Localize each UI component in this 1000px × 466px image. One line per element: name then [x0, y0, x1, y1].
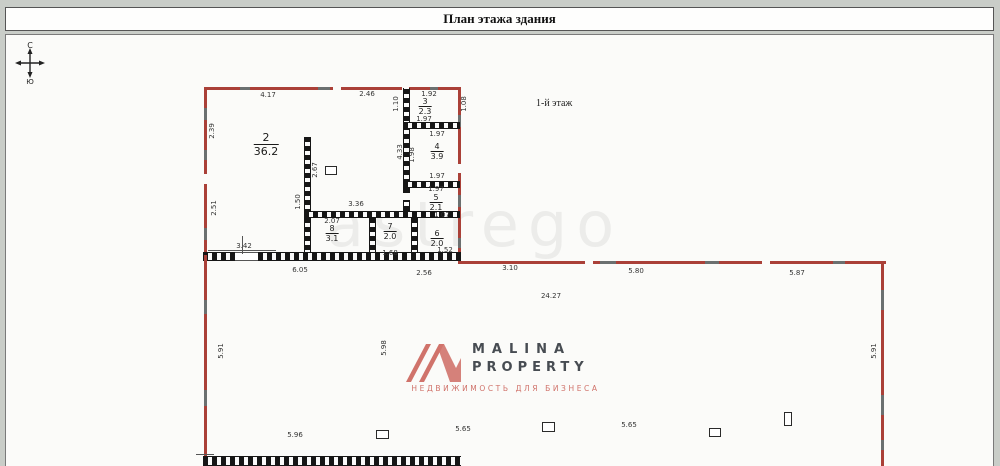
dimension-label: 2.51: [210, 200, 218, 216]
screen: План этажа здания С Ю astrego 1-й этаж: [0, 0, 1000, 466]
outer-wall: [461, 261, 886, 264]
dimension-label: 3.42: [236, 242, 252, 250]
wall-segment: [318, 87, 330, 90]
dimension-label: 2.07: [324, 217, 340, 225]
dimension-label: 5.91: [870, 343, 878, 359]
dimension-label: 5.96: [287, 431, 303, 439]
window: [235, 252, 259, 261]
wall-segment: [705, 261, 719, 264]
dimension-label: 1.97: [416, 115, 432, 123]
dimension-label: 1.50: [294, 194, 302, 210]
door-gap: [333, 87, 341, 90]
wall-segment: [458, 238, 461, 248]
dimension-label: 1.97: [429, 172, 445, 180]
dimension-label: 6.05: [292, 266, 308, 274]
dimension-label: 1.07: [434, 211, 450, 219]
wall-segment: [600, 261, 616, 264]
logo: MALINA PROPERTY НЕДВИЖИМОСТЬ ДЛЯ БИЗНЕСА: [398, 334, 613, 398]
interior-wall: [403, 122, 460, 129]
dimension-label: 1.68: [382, 249, 398, 257]
dimension-label: 1.97: [428, 185, 444, 193]
interior-wall: [258, 252, 461, 261]
dimension-label: 1.98: [408, 147, 416, 163]
logo-tagline: НЕДВИЖИМОСТЬ ДЛЯ БИЗНЕСА: [398, 384, 613, 393]
room-label: 72.0: [384, 222, 397, 242]
door-gap: [585, 261, 593, 264]
room-label: 32.3: [419, 97, 432, 117]
dimension-label: 1.97: [429, 130, 445, 138]
column: [376, 430, 389, 439]
dimension-label: 5.80: [628, 267, 644, 275]
wall-segment: [881, 440, 884, 450]
wall-segment: [881, 395, 884, 415]
dimension-label: 2.46: [359, 90, 375, 98]
wall-segment: [240, 87, 250, 90]
dimension-label: 3.36: [348, 200, 364, 208]
wall-segment: [833, 261, 845, 264]
interior-wall: [203, 456, 461, 466]
dimension-tick: [196, 454, 214, 455]
dimension-label: 5.91: [217, 343, 225, 359]
dimension-label: 24.27: [541, 292, 561, 300]
dimension-label: 3.10: [502, 264, 518, 272]
room-label: 52.1: [430, 193, 443, 213]
wall-segment: [204, 390, 207, 406]
wall-segment: [204, 228, 207, 240]
door-gap: [458, 164, 461, 173]
dimension-label: 1.92: [421, 90, 437, 98]
dimension-label: 5.65: [455, 425, 471, 433]
interior-wall: [403, 88, 410, 193]
wall-segment: [458, 195, 461, 207]
dimension-label: 2.67: [311, 162, 319, 178]
wall-segment: [881, 290, 884, 310]
wall-segment: [204, 150, 207, 160]
column: [784, 412, 792, 426]
dimension-label: 4.33: [396, 144, 404, 160]
dimension-label: 4.17: [260, 91, 276, 99]
room-label: 236.2: [254, 132, 279, 158]
dimension-label: 5.87: [789, 269, 805, 277]
column: [709, 428, 721, 437]
room-label: 83.1: [326, 224, 339, 244]
column: [325, 166, 337, 175]
column: [542, 422, 555, 432]
floor-plan: astrego 1-й этаж: [0, 0, 1000, 466]
wall-segment: [204, 300, 207, 314]
door-gap: [762, 261, 770, 264]
dimension-label: 5.65: [621, 421, 637, 429]
outer-wall: [204, 255, 207, 466]
room-label: 43.9: [431, 142, 444, 162]
dimension-label: 1.10: [392, 96, 400, 112]
dimension-label: 1.08: [460, 96, 468, 112]
dimension-label: 2.39: [208, 123, 216, 139]
door-gap: [204, 174, 207, 184]
wall-segment: [204, 108, 207, 120]
dimension-label: 1.52: [437, 246, 453, 254]
interior-wall: [403, 200, 410, 211]
interior-wall: [203, 252, 235, 261]
logo-mark-icon: [406, 338, 462, 382]
dimension-label: 2.56: [416, 269, 432, 277]
dimension-label: 5.98: [380, 340, 388, 356]
logo-name: MALINA: [472, 342, 571, 357]
interior-wall: [304, 137, 311, 259]
floor-level-label: 1-й этаж: [536, 98, 572, 109]
logo-type: PROPERTY: [472, 360, 589, 375]
